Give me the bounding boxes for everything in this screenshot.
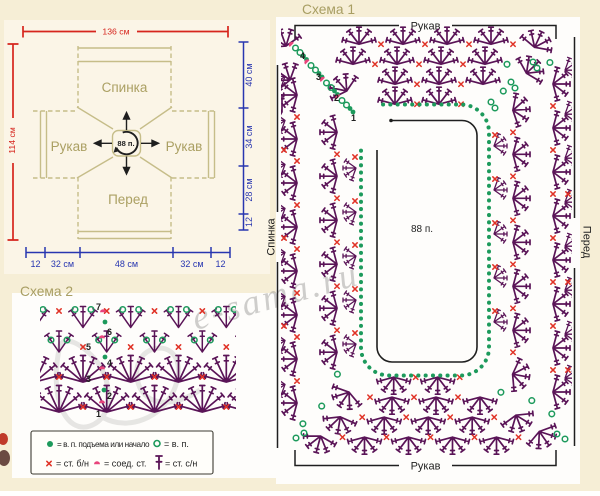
svg-text:Схема 1: Схема 1 bbox=[302, 2, 355, 17]
svg-text:6: 6 bbox=[107, 327, 112, 337]
svg-text:48 см: 48 см bbox=[115, 259, 138, 269]
svg-text:34 см: 34 см bbox=[244, 125, 254, 148]
svg-text:12: 12 bbox=[244, 217, 254, 227]
svg-text:5: 5 bbox=[86, 342, 91, 352]
svg-text:= ст. б/н: = ст. б/н bbox=[56, 459, 89, 469]
svg-text:7: 7 bbox=[96, 302, 101, 312]
svg-text:2: 2 bbox=[107, 391, 112, 401]
svg-text:= в. п. подъема или начало: = в. п. подъема или начало bbox=[57, 440, 150, 449]
svg-text:12: 12 bbox=[215, 259, 225, 269]
svg-text:28 см: 28 см bbox=[244, 178, 254, 201]
svg-text:114 см: 114 см bbox=[7, 127, 17, 154]
svg-text:Рукав: Рукав bbox=[51, 139, 88, 154]
svg-text:Рукав: Рукав bbox=[411, 461, 441, 473]
svg-text:32 см: 32 см bbox=[180, 259, 203, 269]
svg-text:Перед: Перед bbox=[108, 192, 148, 207]
svg-text:Спинка: Спинка bbox=[102, 80, 148, 95]
svg-text:88 п.: 88 п. bbox=[411, 224, 433, 235]
svg-text:= соед. ст.: = соед. ст. bbox=[104, 459, 147, 469]
svg-text:= ст. с/н: = ст. с/н bbox=[165, 459, 197, 469]
svg-text:Спинка: Спинка bbox=[266, 217, 278, 255]
svg-text:Рукав: Рукав bbox=[166, 139, 203, 154]
svg-text:136 см: 136 см bbox=[102, 27, 129, 37]
svg-text:32 см: 32 см bbox=[51, 259, 74, 269]
svg-text:40 см: 40 см bbox=[244, 63, 254, 86]
svg-text:1: 1 bbox=[96, 409, 101, 419]
svg-text:2: 2 bbox=[334, 93, 339, 103]
svg-text:88 п.: 88 п. bbox=[117, 139, 134, 148]
svg-text:1: 1 bbox=[351, 113, 356, 123]
svg-text:4: 4 bbox=[107, 358, 112, 368]
svg-text:4: 4 bbox=[300, 51, 305, 61]
svg-text:Перед: Перед bbox=[581, 226, 593, 259]
svg-text:3: 3 bbox=[316, 72, 321, 82]
svg-text:= в. п.: = в. п. bbox=[164, 439, 189, 449]
svg-text:3: 3 bbox=[86, 374, 91, 384]
svg-text:Схема 2: Схема 2 bbox=[20, 284, 73, 299]
svg-text:12: 12 bbox=[30, 259, 40, 269]
